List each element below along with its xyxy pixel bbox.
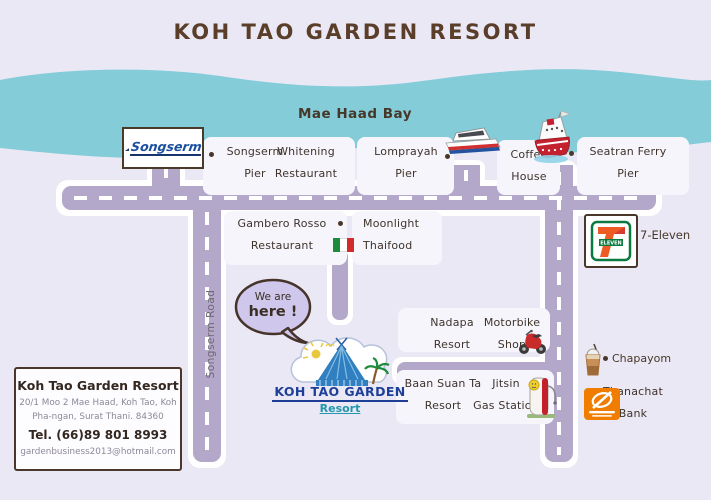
- gas-pump-icon: [524, 370, 558, 420]
- seven-eleven-logo-art: ELEVEN: [590, 220, 632, 262]
- resort-logo-subtitle: Resort: [272, 402, 408, 415]
- resort-logo-name: KOH TAO GARDEN: [272, 384, 408, 402]
- seatran-ferry-icon: [528, 108, 576, 166]
- songserm-road-label: Songserm Road: [205, 269, 217, 399]
- centerline-stub2: [464, 170, 468, 181]
- lomprayah-boat-icon: [440, 124, 504, 162]
- poi-lomprayah-pier: Lomprayah Pier: [366, 141, 446, 185]
- poi-moonlight-thaifood: Moonlight Thaifood: [363, 213, 435, 257]
- dot-songserm-pier: [209, 152, 214, 157]
- bay-label: Mae Haad Bay: [285, 106, 425, 122]
- songserm-logo-text: Songserm: [130, 140, 203, 156]
- poi-seven-eleven-label: 7-Eleven: [640, 228, 690, 242]
- poi-whitening-restaurant: Whitening Restaurant: [260, 141, 352, 185]
- info-resort-name: Koh Tao Garden Resort: [16, 378, 180, 393]
- info-telephone: Tel. (66)89 801 8993: [16, 428, 180, 442]
- map-canvas: KOH TAO GARDEN RESORT Mae Haad Bay Songs…: [0, 0, 711, 500]
- songserm-wave-icon: [124, 142, 129, 154]
- italy-flag-icon: [333, 238, 354, 252]
- resort-logo-art: [280, 316, 400, 388]
- svg-text:ELEVEN: ELEVEN: [600, 241, 622, 247]
- seven-eleven-logo: ELEVEN: [584, 214, 638, 268]
- info-email: gardenbusiness2013@hotmail.com: [16, 447, 180, 457]
- dot-gambero: [338, 221, 343, 226]
- songserm-logo: Songserm: [122, 127, 204, 169]
- poi-gambero-rosso: Gambero Rosso Restaurant: [228, 213, 336, 257]
- poi-seatran-ferry-pier: Seatran Ferry Pier: [577, 141, 679, 185]
- resort-info-box: Koh Tao Garden Resort 20/1 Moo 2 Mae Haa…: [14, 367, 182, 471]
- info-address: 20/1 Moo 2 Mae Haad, Koh Tao, Koh Pha-ng…: [16, 397, 180, 424]
- poi-chapayom-label: Chapayom: [612, 352, 671, 365]
- chapayom-drink-icon: [581, 342, 605, 378]
- thanachat-bank-logo: [583, 387, 623, 423]
- motorbike-icon: [516, 328, 548, 356]
